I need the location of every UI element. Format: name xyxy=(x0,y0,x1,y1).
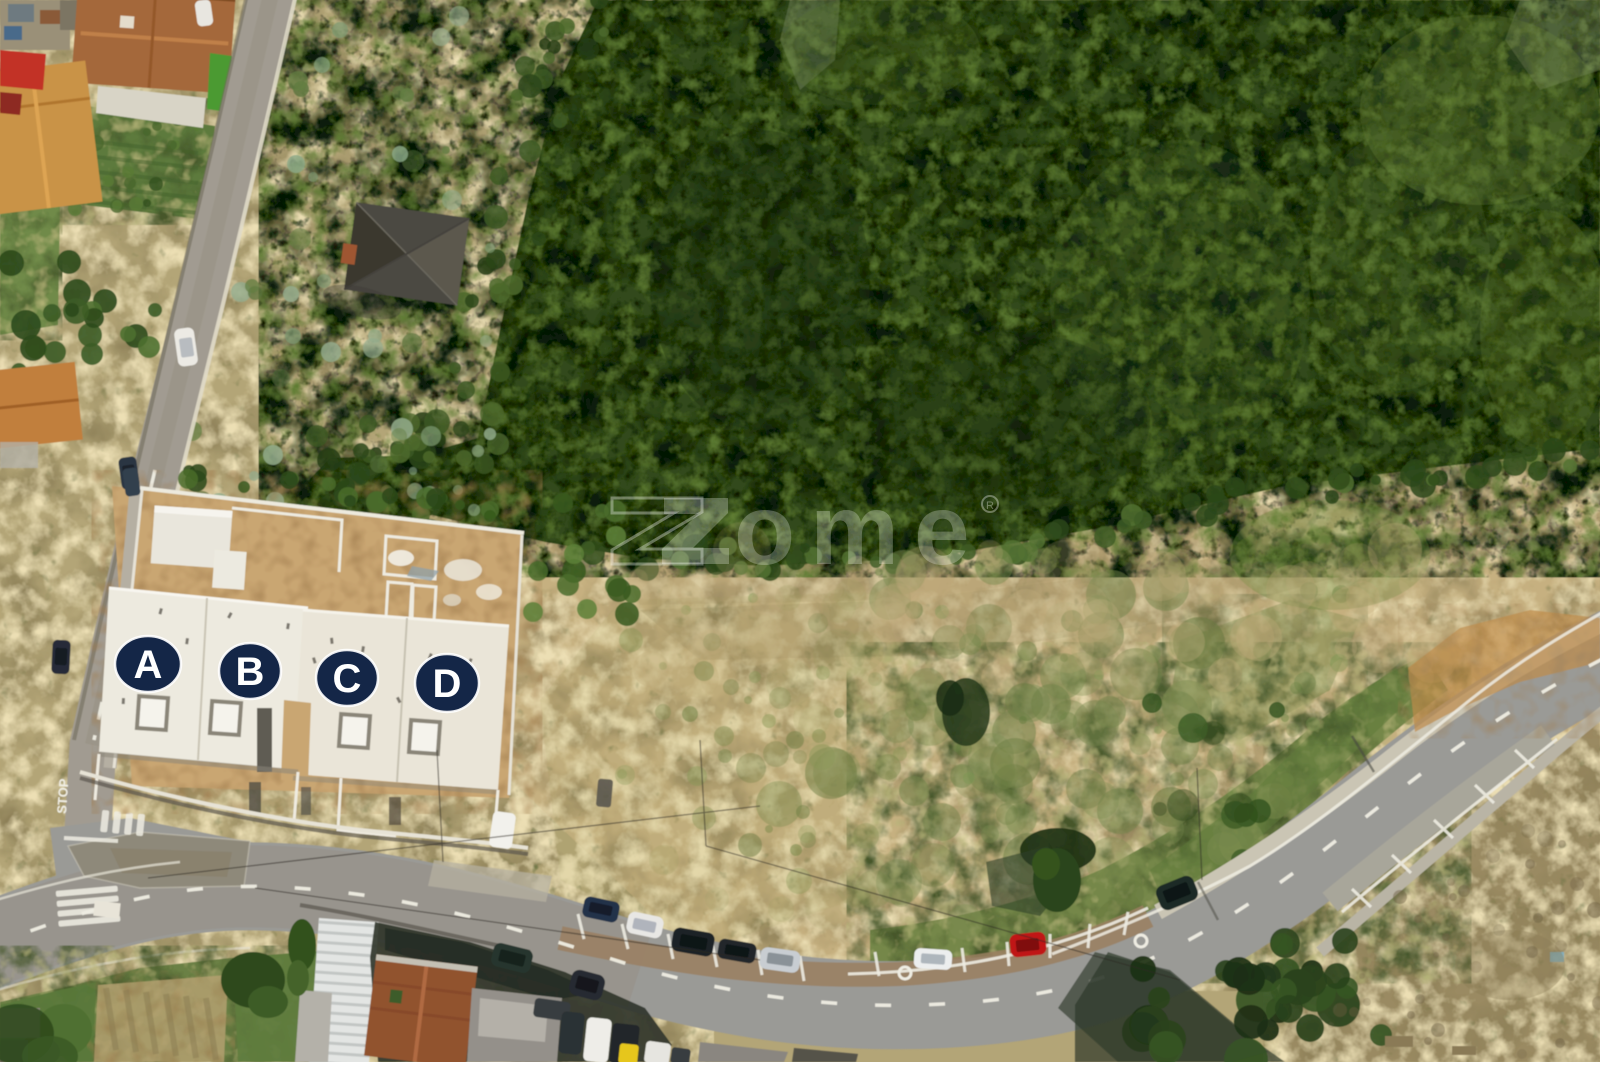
svg-text:R: R xyxy=(986,500,994,512)
svg-text:A: A xyxy=(134,643,163,687)
svg-text:STOP: STOP xyxy=(54,778,71,814)
svg-text:C: C xyxy=(333,657,362,701)
svg-text:D: D xyxy=(433,662,462,706)
svg-text:ome: ome xyxy=(734,474,985,586)
svg-text:B: B xyxy=(236,650,265,694)
